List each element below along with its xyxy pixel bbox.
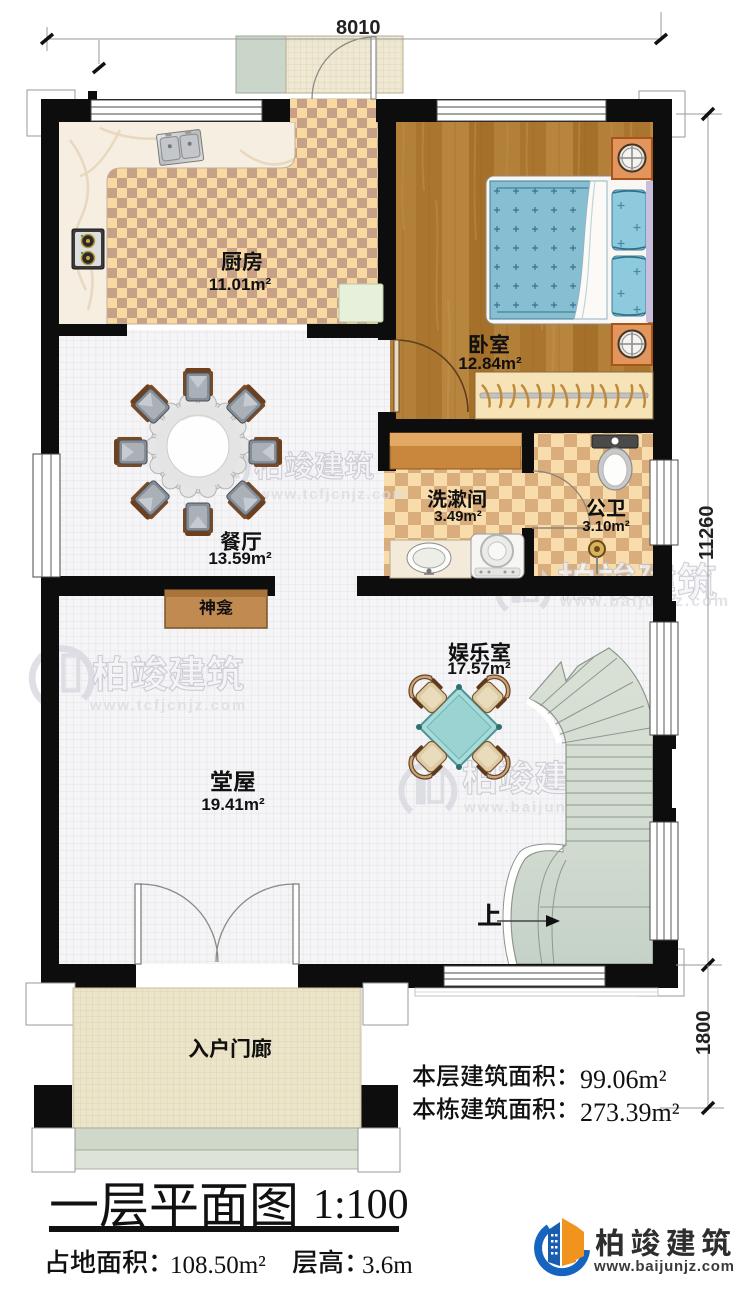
svg-text:www.tcfjcnjz.com: www.tcfjcnjz.com [89, 697, 247, 714]
svg-text:11260: 11260 [696, 505, 718, 560]
svg-text:11.01m²: 11.01m² [209, 275, 272, 294]
svg-text:3.10m²: 3.10m² [582, 518, 630, 535]
svg-text:17.57m²: 17.57m² [447, 659, 511, 678]
svg-text:www.baijunjz.com: www.baijunjz.com [593, 1258, 734, 1275]
svg-text:12.84m²: 12.84m² [458, 354, 522, 373]
svg-text:3.49m²: 3.49m² [434, 508, 482, 525]
svg-text:3.6m: 3.6m [362, 1252, 413, 1279]
svg-text:108.50m²: 108.50m² [170, 1252, 266, 1279]
svg-text:www.tcfjcnjz.com: www.tcfjcnjz.com [257, 486, 407, 503]
svg-text:273.39m²: 273.39m² [580, 1098, 680, 1127]
svg-text:19.41m²: 19.41m² [201, 795, 265, 814]
svg-text:1:100: 1:100 [313, 1182, 409, 1228]
svg-text:1800: 1800 [693, 1011, 715, 1056]
svg-text:8010: 8010 [336, 17, 381, 39]
svg-text:13.59m²: 13.59m² [208, 549, 272, 568]
svg-text:99.06m²: 99.06m² [580, 1065, 667, 1094]
